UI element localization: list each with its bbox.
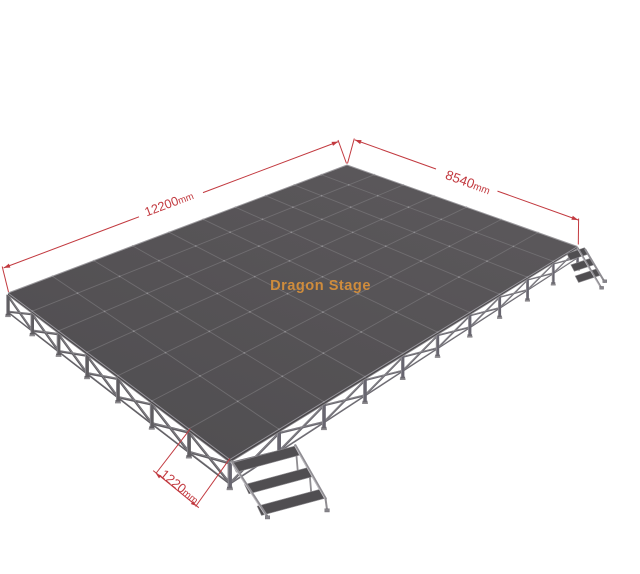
svg-text:Dragon Stage: Dragon Stage: [270, 278, 371, 294]
